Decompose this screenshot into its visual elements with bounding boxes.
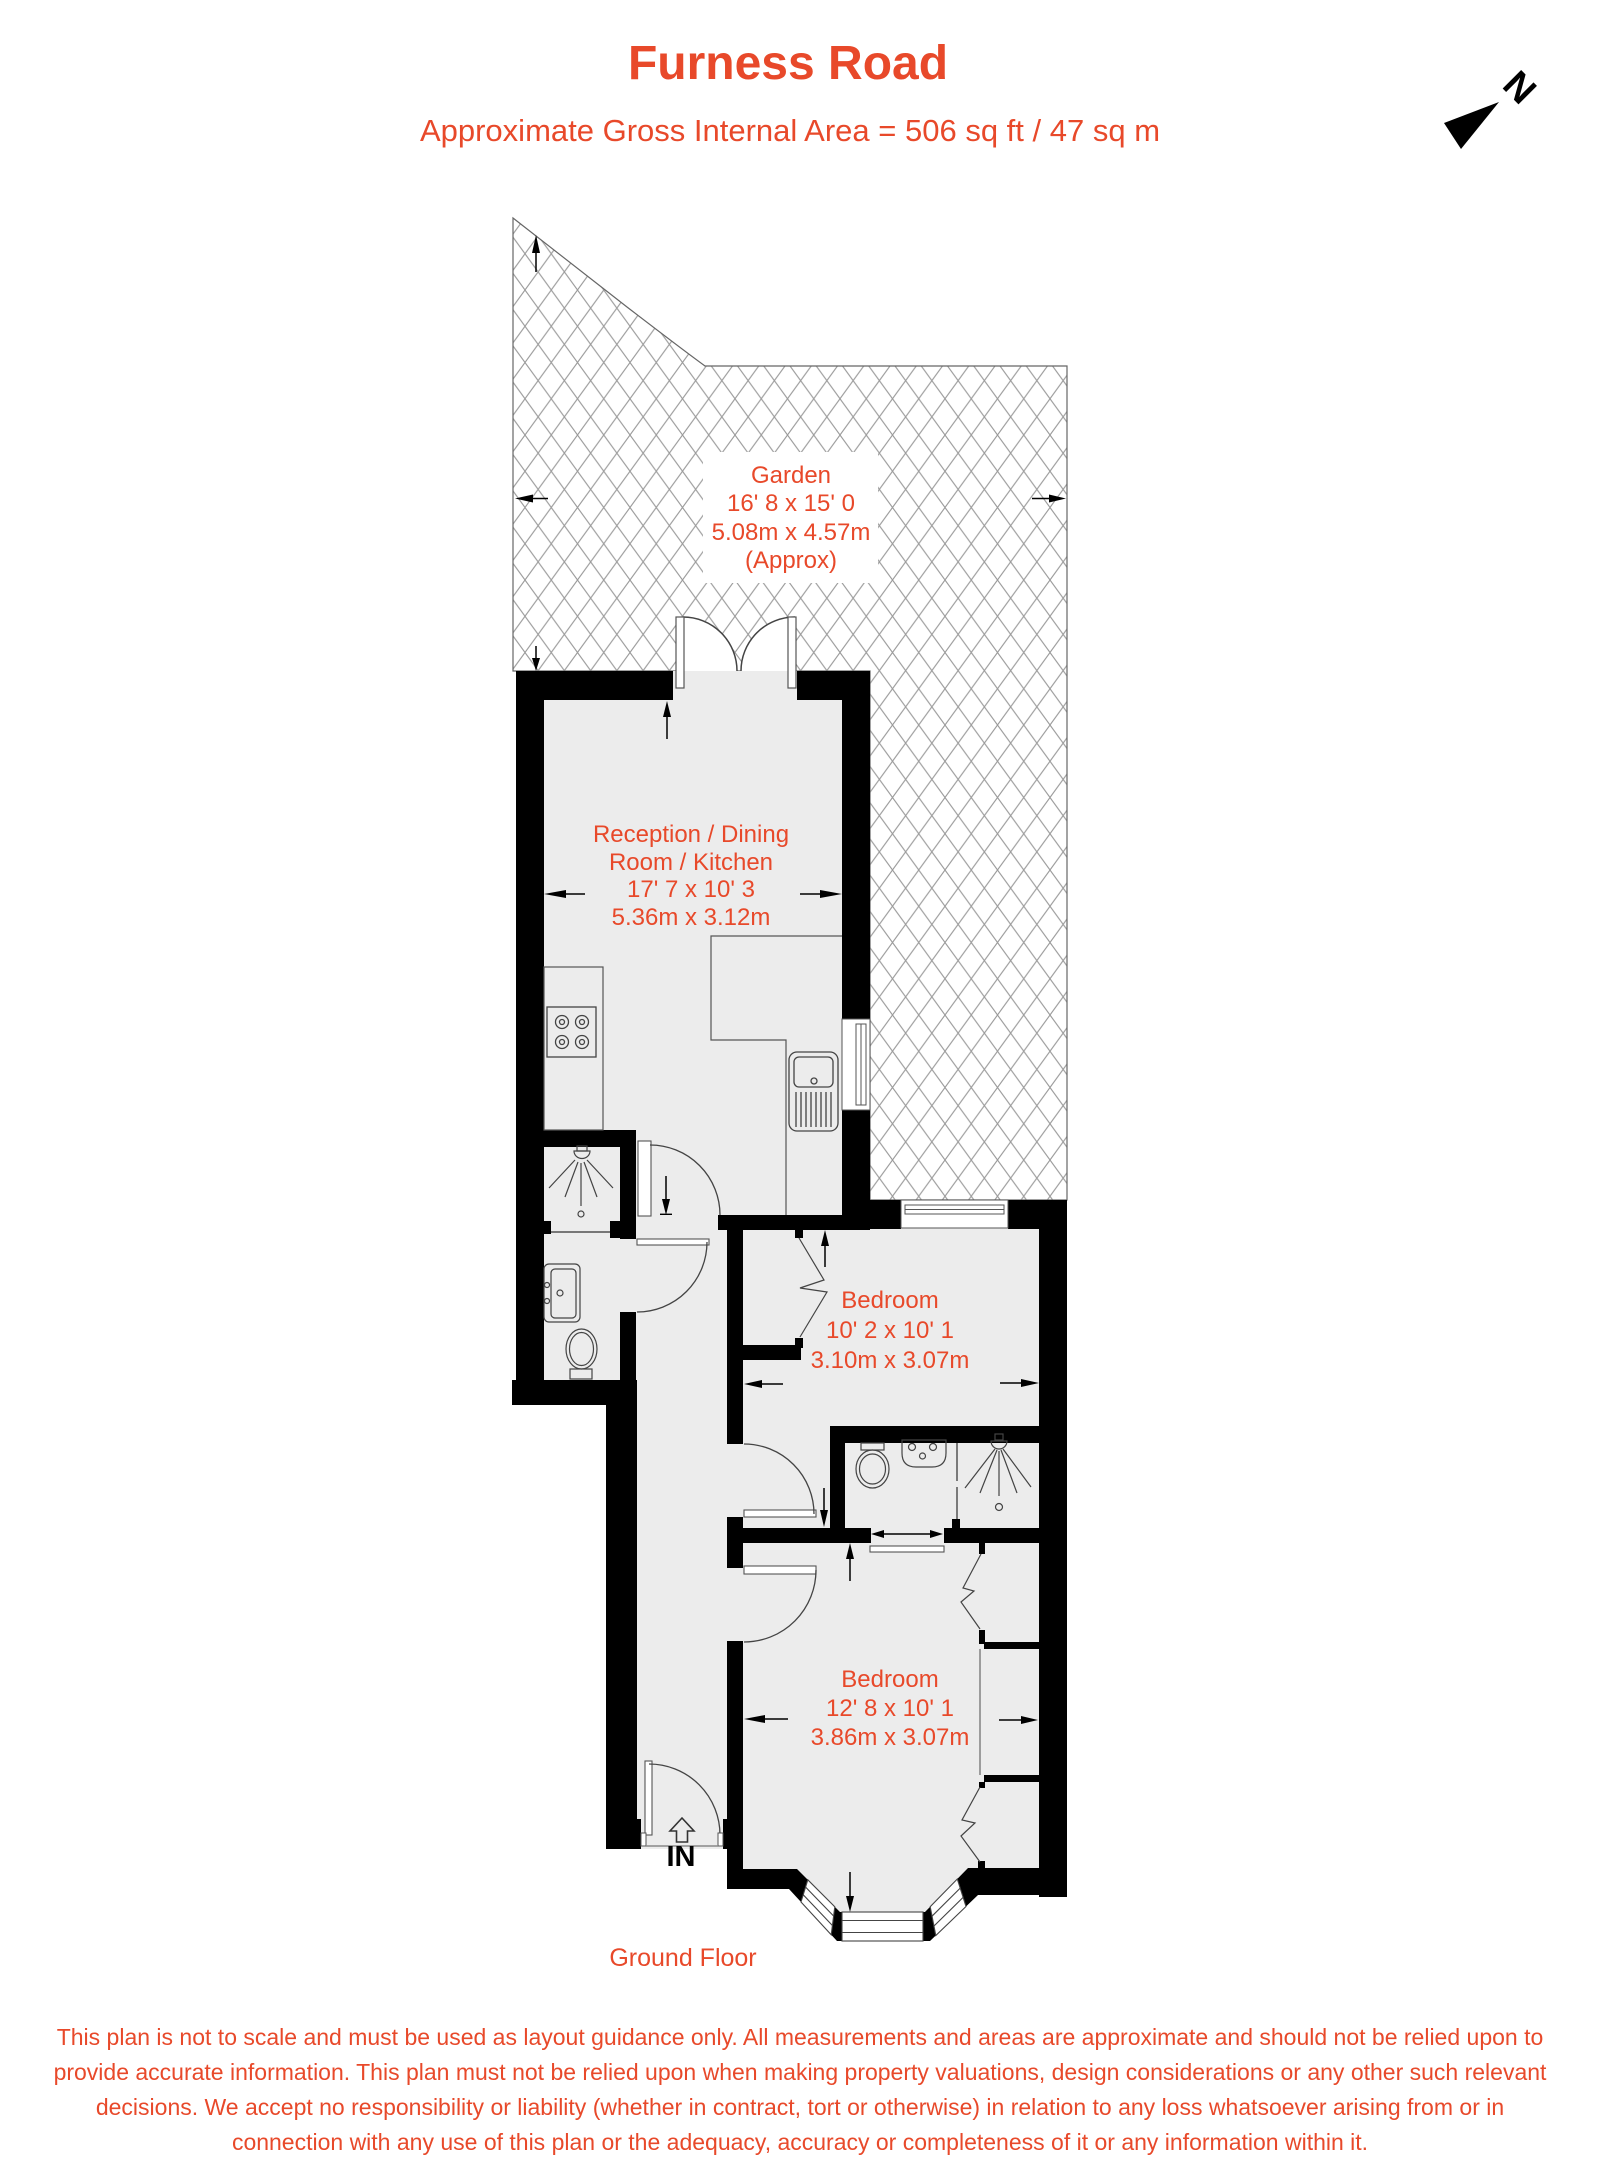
svg-text:10' 2 x 10' 1: 10' 2 x 10' 1 bbox=[826, 1317, 954, 1344]
svg-text:Room / Kitchen: Room / Kitchen bbox=[609, 849, 773, 876]
svg-text:3.10m x 3.07m: 3.10m x 3.07m bbox=[811, 1347, 970, 1374]
svg-text:5.08m x 4.57m: 5.08m x 4.57m bbox=[712, 519, 871, 546]
svg-text:16' 8 x 15' 0: 16' 8 x 15' 0 bbox=[727, 490, 855, 517]
svg-text:connection with any use of thi: connection with any use of this plan or … bbox=[232, 2129, 1368, 2155]
svg-text:(Approx): (Approx) bbox=[745, 547, 837, 574]
svg-text:This plan is not to scale and: This plan is not to scale and must be us… bbox=[57, 2024, 1544, 2050]
svg-text:3.86m x 3.07m: 3.86m x 3.07m bbox=[811, 1724, 970, 1751]
svg-text:Reception / Dining: Reception / Dining bbox=[593, 821, 789, 848]
svg-text:Furness Road: Furness Road bbox=[628, 37, 948, 90]
svg-text:Bedroom: Bedroom bbox=[841, 1287, 938, 1314]
svg-text:Garden: Garden bbox=[751, 462, 831, 489]
svg-text:12' 8 x 10' 1: 12' 8 x 10' 1 bbox=[826, 1695, 954, 1722]
svg-text:Bedroom: Bedroom bbox=[841, 1666, 938, 1693]
svg-text:IN: IN bbox=[667, 1841, 696, 1873]
svg-text:17' 7 x 10' 3: 17' 7 x 10' 3 bbox=[627, 876, 755, 903]
svg-text:5.36m x 3.12m: 5.36m x 3.12m bbox=[612, 904, 771, 931]
svg-text:Approximate Gross Internal Are: Approximate Gross Internal Area = 506 sq… bbox=[420, 113, 1160, 148]
svg-text:decisions. We accept no respon: decisions. We accept no responsibility o… bbox=[96, 2094, 1504, 2120]
svg-text:provide accurate information.: provide accurate information. This plan … bbox=[54, 2059, 1547, 2085]
svg-text:Ground Floor: Ground Floor bbox=[609, 1944, 756, 1972]
